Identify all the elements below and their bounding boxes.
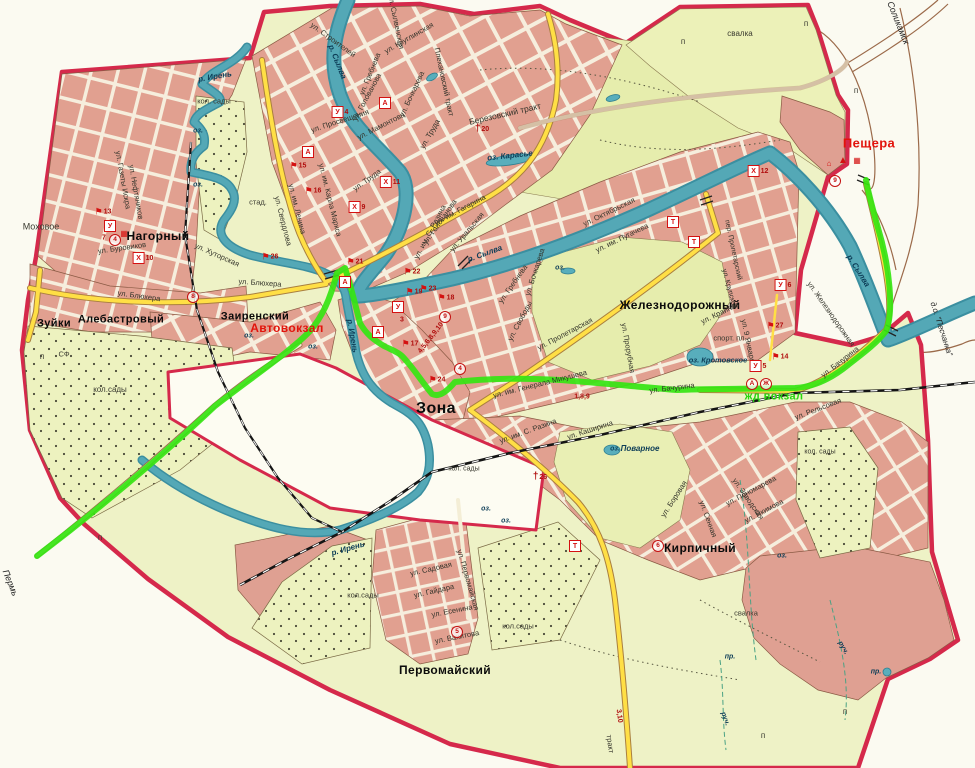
badge-number: 21 (356, 259, 364, 266)
map-badge-flag: ⚑24 (429, 376, 446, 385)
badge-number: 14 (781, 354, 789, 361)
map-labels-layer: НагорныйЗуйкиАлебастровыйЗаиренскийЗонаЖ… (0, 0, 975, 768)
map-label-street: ул. Боровая (659, 479, 688, 518)
map-label-street: ул. Бачурина (649, 382, 695, 395)
home-icon: ⌂ (827, 160, 832, 168)
flag-icon: ⚑ (406, 288, 414, 297)
map-label-dir: Пермь (1, 569, 20, 598)
badge-number: 16 (314, 188, 322, 195)
map-label-street: ул. Свердлова (273, 195, 293, 246)
map-label-poi: свалка (727, 30, 752, 38)
map-label-street: ул. Гайдара (413, 583, 455, 600)
map-badge-circle-А: А (746, 378, 758, 390)
map-badge-flag: ⚑14 (772, 353, 789, 362)
map-badge-circle-4: 4 (109, 234, 121, 246)
map-label-water: оз. (244, 333, 254, 340)
badge-glyph: У (332, 106, 344, 118)
map-label-poi: п (761, 732, 765, 740)
map-badge-cross: †20 (475, 124, 489, 134)
map-label-water: оз. (481, 506, 491, 513)
map-label-water: р. Ирень (198, 70, 233, 84)
map-label-water: р. Сылва (467, 244, 504, 264)
map-label-street: ул. Блюхера (238, 278, 281, 288)
badge-glyph: У (392, 301, 404, 313)
badge-number: 15 (299, 163, 307, 170)
map-badge-circle-9: 9 (829, 175, 841, 187)
map-label-water: оз. Кротовское (689, 356, 748, 364)
map-label-street: ул. Есенина (431, 603, 473, 618)
bld-icon: ▦ (853, 157, 861, 165)
map-badge-circle-6: 6 (652, 540, 664, 552)
map-label-num: 7 (102, 235, 106, 242)
map-badge-box-У: У6 (775, 279, 792, 291)
flag-icon: ⚑ (772, 353, 780, 362)
map-label-town: Зона (416, 401, 456, 417)
map-label-street: ул. им. Пугачева (595, 222, 650, 254)
map-label-street: ул. Железнодорожная (806, 280, 856, 347)
map-badge-bld: ▦ (120, 230, 128, 238)
map-badge-circle-4: 4 (454, 363, 466, 375)
map-label-dir: Соликамск (885, 0, 910, 46)
map-badge-box-Т: Т (688, 236, 700, 248)
map-label-water: руч. (719, 711, 730, 727)
map-badge-circle-9: 9 (439, 311, 451, 323)
flag-icon: ⚑ (95, 208, 103, 217)
map-label-poi: п (854, 87, 858, 95)
badge-glyph: Х (380, 176, 392, 188)
map-badge-box-У: У (392, 301, 404, 313)
map-label-street: ул. Свободы (506, 300, 533, 342)
badge-number: 23 (429, 286, 437, 293)
map-label-town-red: Автовокзал (250, 322, 324, 334)
map-badge-box-А: А (379, 97, 391, 109)
badge-glyph: Ж (760, 378, 772, 390)
map-label-street: ул. Каширина (566, 419, 614, 441)
map-label-street: тракт (605, 734, 615, 753)
map-label-water: оз. (193, 128, 203, 135)
map-label-street: ул. Гребнева (497, 264, 529, 305)
map-badge-flag: ⚑18 (438, 294, 455, 303)
badge-number: 10 (146, 255, 154, 262)
map-label-poi: п (681, 38, 685, 46)
map-label-street: ул. Прорубная (620, 323, 636, 374)
badge-number: 20 (481, 126, 489, 133)
map-label-water: оз. (610, 446, 620, 453)
badge-glyph: 4 (109, 234, 121, 246)
flag-icon: ⚑ (347, 258, 355, 267)
map-label-poi: стад. (249, 198, 267, 206)
map-label-poi: кол. сады (804, 449, 835, 456)
badge-glyph: А (746, 378, 758, 390)
map-label-water: оз. (501, 518, 511, 525)
map-badge-tent: ▲ (838, 156, 848, 166)
map-label-street: ул. Круглинская (383, 21, 434, 55)
badge-glyph: Х (133, 252, 145, 264)
map-label-poi: кол. сады (197, 97, 231, 105)
city-map: НагорныйЗуйкиАлебастровыйЗаиренскийЗонаЖ… (0, 0, 975, 768)
map-label-water: оз. (193, 182, 203, 189)
badge-glyph: Т (569, 540, 581, 552)
badge-glyph: Т (667, 216, 679, 228)
map-badge-flag: ⚑15 (290, 162, 307, 171)
map-label-water: пр. (871, 669, 882, 676)
map-badge-box-Т: Т (569, 540, 581, 552)
map-badge-box-А: А (302, 146, 314, 158)
badge-number: 18 (447, 295, 455, 302)
map-badge-flag: ⚑22 (404, 268, 421, 277)
map-label-street: ул. Бачурина (820, 345, 860, 379)
badge-glyph: Х (748, 165, 760, 177)
map-label-dir: д.о. "Песчанка" (928, 301, 953, 357)
map-badge-box-А: А (372, 326, 384, 338)
map-badge-box-Х: Х12 (748, 165, 769, 177)
tent-icon: ▲ (838, 156, 848, 166)
map-badge-circle-8: 8 (187, 291, 199, 303)
map-badge-flag: ⚑26 (262, 253, 279, 262)
badge-glyph: Т (688, 236, 700, 248)
map-badge-cross: †26 (533, 472, 547, 482)
map-label-street: ул. им. С. Разина (413, 204, 448, 261)
map-label-street: ул. им. С. Разина (499, 417, 558, 445)
map-badge-box-А: А (339, 276, 351, 288)
badge-glyph: А (339, 276, 351, 288)
map-badge-flag: ⚑27 (767, 322, 784, 331)
map-label-num: 3 (400, 317, 404, 324)
badge-number: 26 (539, 474, 547, 481)
map-badge-box-У: У4 (332, 106, 349, 118)
map-label-poi: п (843, 708, 847, 716)
map-label-poi: СФ (58, 350, 69, 358)
map-label-town: Первомайский (399, 664, 491, 676)
badge-glyph: А (372, 326, 384, 338)
map-badge-circle-Ж: Ж (760, 378, 772, 390)
badge-glyph: У (750, 360, 762, 372)
map-badge-box-Х: Х11 (380, 176, 400, 188)
badge-glyph: 4 (454, 363, 466, 375)
badge-glyph: 8 (187, 291, 199, 303)
badge-glyph: У (775, 279, 787, 291)
badge-number: 6 (788, 282, 792, 289)
map-label-water: пр. (725, 654, 736, 661)
map-label-poi: спорт. пл. (713, 334, 746, 342)
badge-glyph: 9 (439, 311, 451, 323)
map-label-poi: кол.сады (347, 591, 379, 599)
map-label-water: р. Ирень (345, 319, 359, 354)
cross-icon: † (533, 472, 539, 482)
map-label-town: Кирпичный (664, 542, 736, 554)
map-badge-flag: ⚑16 (305, 187, 322, 196)
map-label-street: ул. им. Карла Маркса (317, 163, 342, 237)
badge-number: 11 (393, 179, 400, 186)
badge-number: 13 (104, 209, 112, 216)
map-label-town: Зуйки (37, 319, 71, 330)
map-badge-flag: ⚑21 (347, 258, 364, 267)
flag-icon: ⚑ (262, 253, 270, 262)
badge-number: 5 (763, 363, 767, 370)
map-label-street: ул. Бочкарева (398, 70, 426, 118)
flag-icon: ⚑ (404, 268, 412, 277)
bld-icon: ▦ (120, 230, 128, 238)
map-label-poi: кол. сады (448, 466, 479, 473)
map-label-street: ул. Хуторская (194, 242, 241, 268)
map-badge-bld: ▦ (853, 157, 861, 165)
map-label-street: ул. Октябрьская (582, 196, 636, 228)
badge-glyph: 5 (451, 626, 463, 638)
map-label-water: р. Сылва (845, 254, 871, 289)
badge-number: 22 (413, 269, 421, 276)
map-label-town-green: жд вокзал (745, 392, 804, 403)
cross-icon: † (475, 124, 481, 134)
map-label-street: ул. Пролетарская (536, 316, 593, 351)
map-label-poi: п (40, 353, 44, 361)
map-label-water: Поварное (621, 445, 660, 453)
map-badge-flag: ⚑17 (402, 340, 419, 349)
badge-number: 24 (438, 377, 446, 384)
map-badge-box-У: У5 (750, 360, 767, 372)
map-label-town-red: Пещера (843, 137, 895, 150)
map-label-num: 3,10 (615, 709, 624, 723)
map-badge-flag: ⚑13 (95, 208, 112, 217)
badge-glyph: А (379, 97, 391, 109)
badge-number: 9 (362, 204, 366, 211)
badge-glyph: 9 (829, 175, 841, 187)
badge-number: 27 (776, 323, 784, 330)
badge-glyph: 6 (652, 540, 664, 552)
badge-glyph: У (104, 220, 116, 232)
map-label-street: ул. Садовая (409, 561, 452, 578)
flag-icon: ⚑ (402, 340, 410, 349)
map-label-water: оз. (555, 265, 565, 272)
map-badge-flag: ⚑23 (420, 285, 437, 294)
flag-icon: ⚑ (438, 294, 446, 303)
badge-number: 26 (271, 254, 279, 261)
map-badge-box-Т: Т (667, 216, 679, 228)
map-label-poi: п (804, 20, 808, 28)
map-label-street: ул. Сенная (698, 500, 718, 538)
map-label-poi: Моховое (23, 223, 60, 232)
badge-number: 12 (761, 168, 769, 175)
map-label-water: оз. (777, 553, 787, 560)
flag-icon: ⚑ (420, 285, 428, 294)
badge-number: 17 (411, 341, 419, 348)
map-badge-circle-5: 5 (451, 626, 463, 638)
map-badge-box-У: У (104, 220, 116, 232)
map-label-street: ул. Бочкарева (524, 248, 546, 297)
map-label-water: оз. (308, 344, 318, 351)
map-label-water: руч. (836, 640, 849, 656)
map-badge-home: ⌂ (827, 160, 832, 168)
badge-number: 4 (345, 109, 349, 116)
map-label-street: ул. Труда (352, 167, 383, 192)
map-label-num: 4,5,6,8,9,10 (417, 321, 445, 354)
map-label-town: Алебастровый (78, 315, 164, 326)
map-label-street: ул. Блюхера (117, 289, 161, 302)
map-badge-box-Х: Х10 (133, 252, 154, 264)
flag-icon: ⚑ (290, 162, 298, 171)
badge-glyph: А (302, 146, 314, 158)
flag-icon: ⚑ (767, 322, 775, 331)
badge-glyph: Х (349, 201, 361, 213)
map-label-num: 1,8,9 (574, 394, 590, 401)
map-label-street: Плехановский тракт (433, 47, 455, 117)
map-badge-box-Х: Х9 (349, 201, 366, 213)
map-label-water: оз. Карасье (487, 150, 533, 163)
flag-icon: ⚑ (429, 376, 437, 385)
map-label-poi: кол.сады (93, 386, 127, 394)
map-label-poi: кол.сады (502, 622, 534, 630)
map-label-poi: свалка (734, 609, 758, 617)
map-label-street: ул. Труда (419, 118, 442, 150)
map-label-water: р. Ирень (331, 540, 366, 557)
flag-icon: ⚑ (305, 187, 313, 196)
map-label-poi: п (98, 534, 102, 542)
